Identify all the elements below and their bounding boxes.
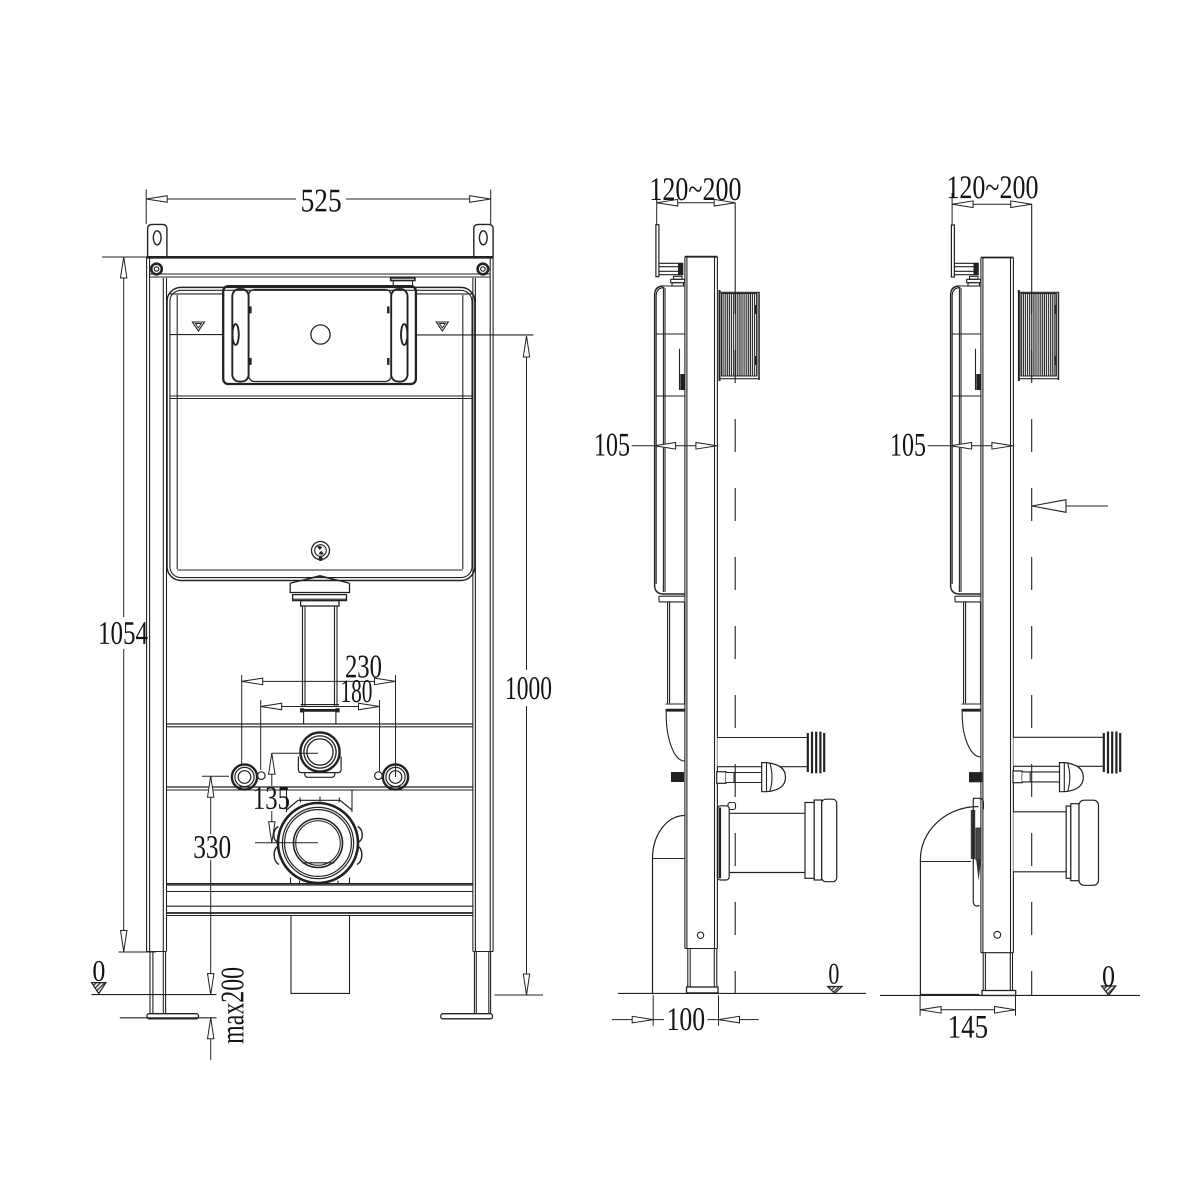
svg-text:1000: 1000: [505, 671, 552, 707]
svg-text:525: 525: [301, 183, 342, 219]
svg-text:1054: 1054: [98, 616, 148, 652]
svg-text:330: 330: [193, 830, 231, 866]
svg-text:180: 180: [340, 674, 372, 710]
svg-text:0: 0: [1102, 960, 1115, 993]
svg-text:145: 145: [948, 1010, 989, 1046]
svg-text:105: 105: [890, 428, 926, 464]
svg-text:0: 0: [92, 955, 105, 988]
svg-text:105: 105: [594, 427, 630, 463]
svg-text:135: 135: [253, 781, 290, 817]
svg-text:120~200: 120~200: [649, 172, 741, 208]
svg-text:120~200: 120~200: [946, 170, 1038, 206]
svg-text:0: 0: [828, 958, 839, 991]
svg-text:100: 100: [667, 1002, 706, 1038]
svg-text:max200: max200: [215, 967, 251, 1044]
